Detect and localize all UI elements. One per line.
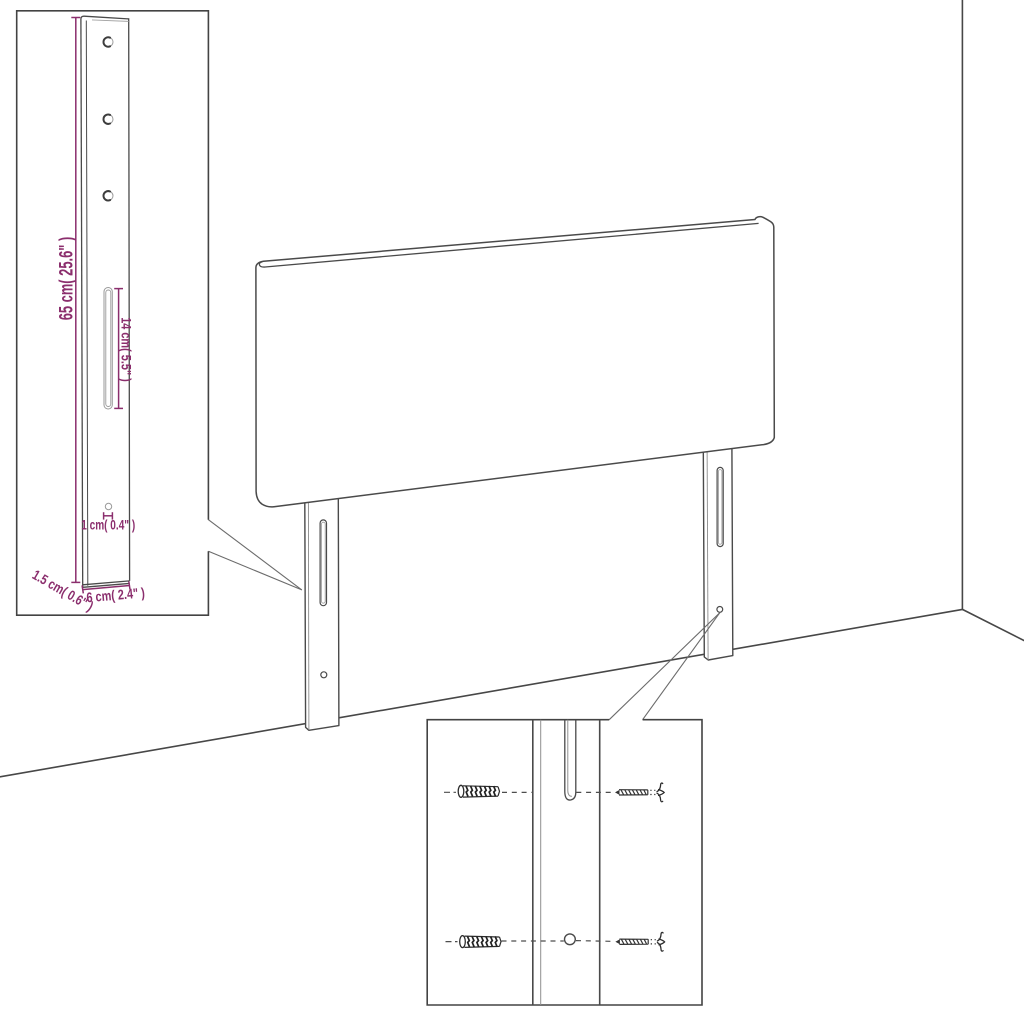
svg-text:14 cm( 5.5" ): 14 cm( 5.5" ) [118, 317, 134, 382]
svg-text:1 cm( 0.4" ): 1 cm( 0.4" ) [81, 517, 135, 533]
svg-text:65 cm( 25.6" ): 65 cm( 25.6" ) [56, 237, 77, 321]
